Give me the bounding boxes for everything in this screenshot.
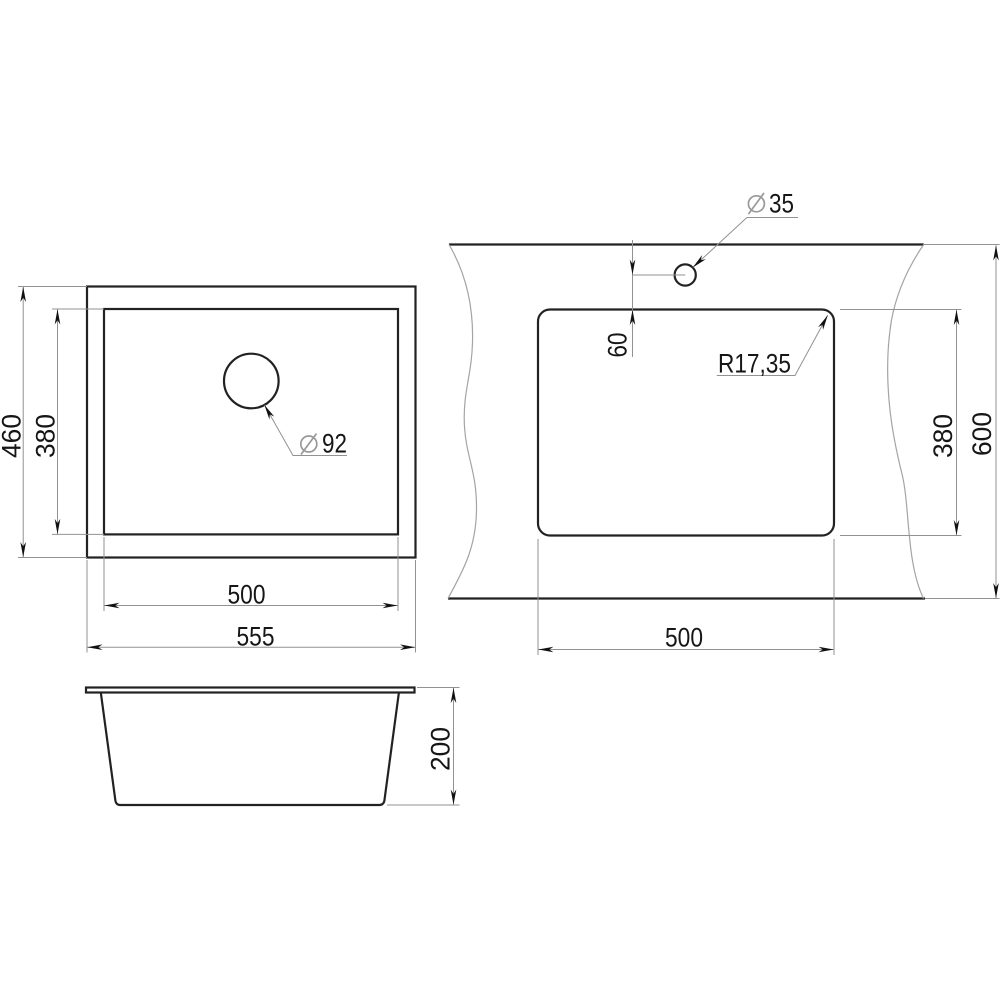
svg-text:460: 460 [0,414,26,458]
svg-text:380: 380 [928,414,958,458]
svg-text:92: 92 [322,429,347,459]
svg-text:200: 200 [425,727,455,771]
svg-text:555: 555 [237,622,275,652]
svg-text:60: 60 [603,333,633,358]
svg-text:35: 35 [769,189,794,219]
svg-text:R17,35: R17,35 [718,349,791,379]
svg-text:500: 500 [665,623,703,653]
svg-text:380: 380 [30,414,60,458]
svg-text:600: 600 [967,412,997,456]
svg-text:500: 500 [228,580,266,610]
